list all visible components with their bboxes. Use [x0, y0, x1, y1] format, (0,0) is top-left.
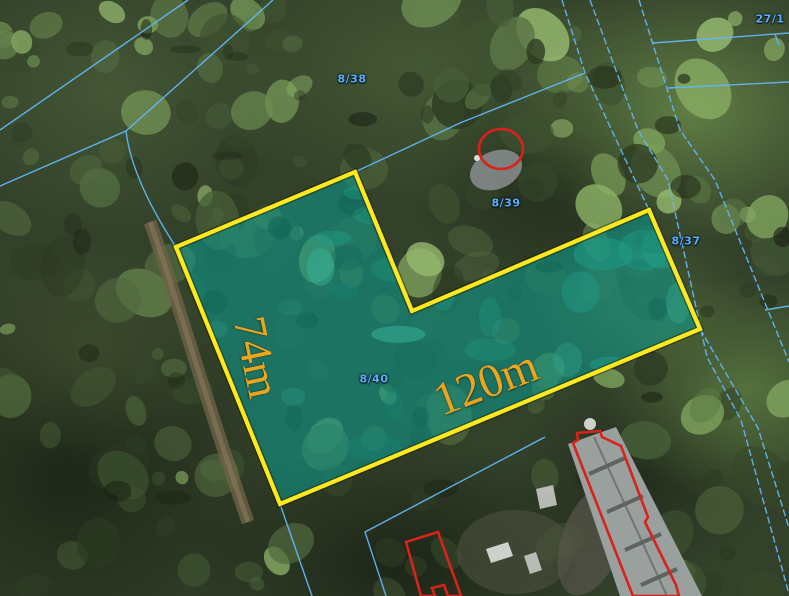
clearing [457, 485, 573, 594]
parcel-label-27-1: 27/1 [756, 13, 785, 26]
parcel-label-8-39: 8/39 [492, 197, 521, 210]
parcel-label-8-40: 8/40 [360, 373, 389, 386]
parcel-label-8-37: 8/37 [672, 235, 701, 248]
map-overlay-svg [0, 0, 789, 596]
aerial-map[interactable]: 8/38 8/39 8/40 8/37 27/1 74m 120m [0, 0, 789, 596]
parcel-label-8-38: 8/38 [338, 73, 367, 86]
